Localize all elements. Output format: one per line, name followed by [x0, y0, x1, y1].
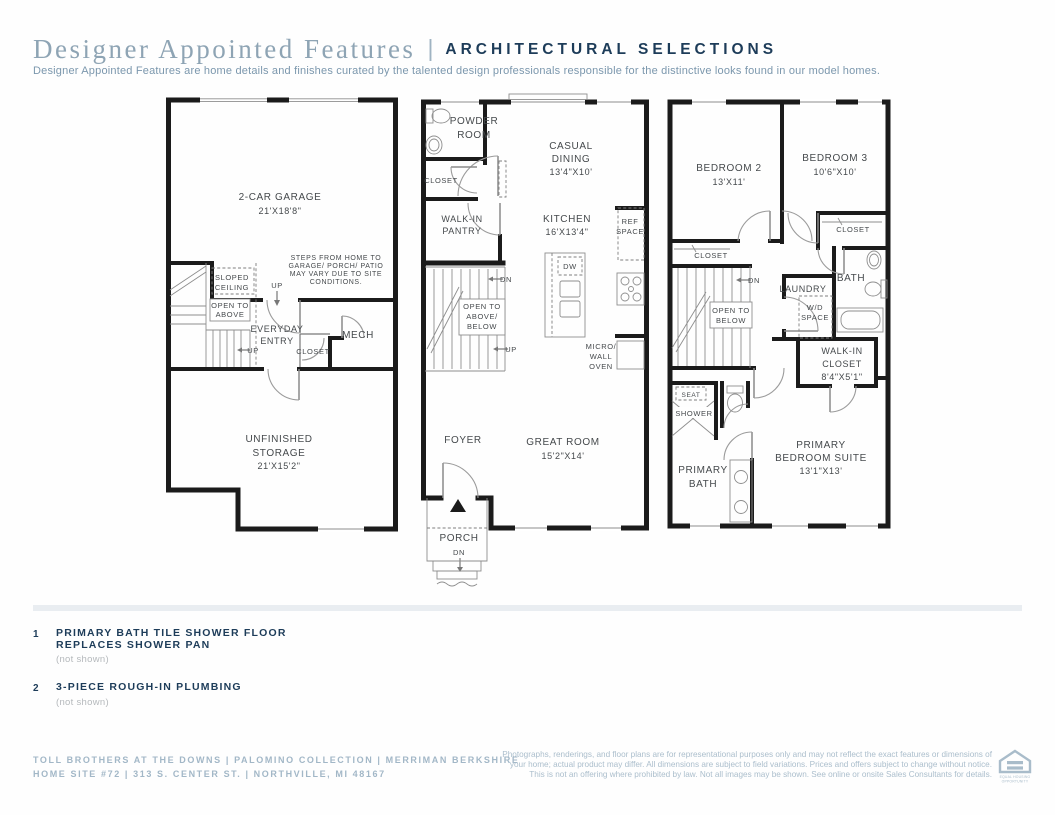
floor-plan-main-level: POWDER ROOM CLOSET WALK-IN PANTRY CASUAL…	[421, 91, 649, 596]
footer-community-info: TOLL BROTHERS AT THE DOWNS | PALOMINO CO…	[33, 753, 519, 781]
garage-door-opening	[200, 97, 358, 103]
room-label-pantry-2: PANTRY	[442, 226, 481, 236]
page-subtitle: ARCHITECTURAL SELECTIONS	[445, 41, 777, 58]
equal-housing-label-1: EQUAL HOUSING	[1000, 775, 1031, 779]
room-label-pbath-1: PRIMARY	[678, 465, 728, 476]
header: Designer Appointed Features|ARCHITECTURA…	[33, 34, 777, 65]
label-micro-1: MICRO/	[586, 342, 617, 351]
labels: POWDER ROOM CLOSET WALK-IN PANTRY CASUAL…	[424, 116, 644, 557]
page-title: Designer Appointed Features	[33, 34, 415, 64]
features-list: 1 PRIMARY BATH TILE SHOWER FLOOR REPLACE…	[33, 628, 287, 725]
feature-number: 2	[33, 682, 56, 708]
room-label-storage-2: STORAGE	[253, 448, 306, 459]
room-dim-great: 15'2"X14'	[541, 451, 584, 461]
label-up-top: UP	[271, 281, 283, 290]
room-label-closet: CLOSET	[296, 347, 330, 356]
room-label-wic-1: WALK-IN	[821, 346, 862, 356]
room-label-suite-1: PRIMARY	[796, 440, 846, 451]
room-label-closet: CLOSET	[424, 176, 458, 185]
label-wd-2: SPACE	[801, 313, 829, 322]
feature-note: (not shown)	[56, 654, 287, 665]
label-porch-dn: DN	[453, 548, 465, 557]
bay-window	[509, 94, 587, 100]
feature-item: 2 3-PIECE ROUGH-IN PLUMBING (not shown)	[33, 682, 287, 708]
entry-marker	[450, 499, 466, 512]
room-label-laundry: LAUNDRY	[779, 284, 826, 294]
feature-text-line: PRIMARY BATH TILE SHOWER FLOOR	[56, 628, 287, 640]
room-label-powder-1: POWDER	[450, 116, 499, 127]
label-open-above-1: OPEN TO	[211, 301, 249, 310]
room-label-entry-2: ENTRY	[260, 336, 293, 346]
label-open-2: ABOVE/	[466, 312, 498, 321]
disclaimer-line-3: This is not an offering where prohibited…	[502, 770, 992, 780]
room-dim-dining: 13'4"X10'	[549, 167, 592, 177]
label-open-3: BELOW	[467, 322, 497, 331]
feature-text-line: 3-PIECE ROUGH-IN PLUMBING	[56, 682, 242, 694]
floor-plan-lower-level: 2-CAR GARAGE 21'X18'8" STEPS FROM HOME T…	[166, 96, 398, 536]
feature-number: 1	[33, 628, 56, 665]
room-label-porch: PORCH	[439, 533, 478, 544]
note-steps-3: MAY VARY DUE TO SITE	[290, 271, 382, 278]
room-dim-storage: 21'X15'2"	[257, 461, 300, 471]
footer-line-2: HOME SITE #72 | 313 S. CENTER ST. | NORT…	[33, 767, 519, 781]
disclaimer-line-1: Photographs, renderings, and floor plans…	[502, 750, 992, 760]
label-shower: SHOWER	[675, 409, 712, 418]
room-label-pbath-2: BATH	[689, 479, 717, 490]
room-label-dining-2: DINING	[552, 154, 591, 165]
label-dw: DW	[563, 262, 577, 271]
footer-line-1: TOLL BROTHERS AT THE DOWNS | PALOMINO CO…	[33, 753, 519, 767]
note-steps-4: CONDITIONS.	[310, 279, 363, 286]
cased-opening	[499, 161, 506, 197]
label-ref-2: SPACE	[616, 227, 644, 236]
label-micro-2: WALL	[590, 352, 613, 361]
label-open-above-2: ABOVE	[216, 310, 245, 319]
room-label-powder-2: ROOM	[457, 130, 491, 141]
window-storage	[318, 526, 364, 532]
label-seat: SEAT	[682, 392, 701, 399]
label-sloped-1: SLOPED	[215, 273, 249, 282]
labels: 2-CAR GARAGE 21'X18'8" STEPS FROM HOME T…	[211, 192, 383, 471]
room-label-entry-1: EVERYDAY	[251, 324, 304, 334]
feature-note: (not shown)	[56, 697, 242, 708]
room-label-bath: BATH	[837, 273, 865, 284]
room-label-bed3: BEDROOM 3	[802, 153, 867, 164]
label-wd-1: W/D	[807, 303, 823, 312]
room-dim-garage: 21'X18'8"	[258, 206, 301, 216]
room-label-suite-2: BEDROOM SUITE	[775, 453, 867, 464]
page-description: Designer Appointed Features are home det…	[33, 65, 880, 77]
label-ref-1: REF	[622, 217, 639, 226]
room-label-pantry-1: WALK-IN	[441, 214, 482, 224]
room-label-dining-1: CASUAL	[549, 141, 593, 152]
floor-plan-upper-level: BEDROOM 2 13'X11' BEDROOM 3 10'6"X10' CL…	[666, 96, 892, 532]
label-up: UP	[505, 345, 517, 354]
label-sloped-2: CEILING	[215, 283, 249, 292]
walls	[424, 102, 647, 528]
label-open-1: OPEN TO	[712, 306, 750, 315]
label-dn: DN	[748, 276, 760, 285]
doors	[724, 211, 856, 460]
equal-housing-icon: EQUAL HOUSING OPPORTUNITY	[997, 748, 1033, 788]
room-label-wic-2: CLOSET	[822, 359, 862, 369]
label-dn: DN	[500, 275, 512, 284]
feature-item: 1 PRIMARY BATH TILE SHOWER FLOOR REPLACE…	[33, 628, 287, 665]
label-open-2: BELOW	[716, 316, 746, 325]
label-open-1: OPEN TO	[463, 302, 501, 311]
label-up-stair: UP	[247, 346, 259, 355]
room-label-bed2: BEDROOM 2	[696, 163, 761, 174]
disclaimer-line-2: your home; actual product may differ. Al…	[502, 760, 992, 770]
label-closet-bed3: CLOSET	[836, 225, 870, 234]
room-label-mech: MECH	[342, 330, 374, 341]
powder-room-fixtures	[426, 109, 450, 154]
label-micro-3: OVEN	[589, 362, 613, 371]
room-dim-kitchen: 16'X13'4"	[545, 227, 588, 237]
title-separator: |	[427, 35, 433, 61]
feature-text-line: REPLACES SHOWER PAN	[56, 640, 287, 652]
room-dim-bed2: 13'X11'	[713, 177, 746, 187]
room-label-foyer: FOYER	[444, 435, 481, 446]
room-label-storage-1: UNFINISHED	[245, 434, 312, 445]
room-label-great: GREAT ROOM	[526, 437, 599, 448]
equal-housing-label-2: OPPORTUNITY	[1002, 780, 1029, 784]
room-dim-bed3: 10'6"X10'	[813, 167, 856, 177]
note-steps-1: STEPS FROM HOME TO	[291, 255, 382, 262]
room-label-garage: 2-CAR GARAGE	[239, 192, 322, 203]
primary-bath-fixtures	[672, 386, 752, 522]
page: Designer Appointed Features|ARCHITECTURA…	[0, 0, 1055, 815]
label-closet-bed2: CLOSET	[694, 251, 728, 260]
footer-disclaimer: Photographs, renderings, and floor plans…	[502, 750, 992, 780]
room-dim-wic: 8'4"X5'1"	[821, 372, 862, 382]
room-label-kitchen: KITCHEN	[543, 214, 591, 225]
note-steps-2: GARAGE/ PORCH/ PATIO	[289, 263, 384, 270]
room-dim-suite: 13'1"X13'	[799, 466, 842, 476]
section-divider	[33, 605, 1022, 611]
